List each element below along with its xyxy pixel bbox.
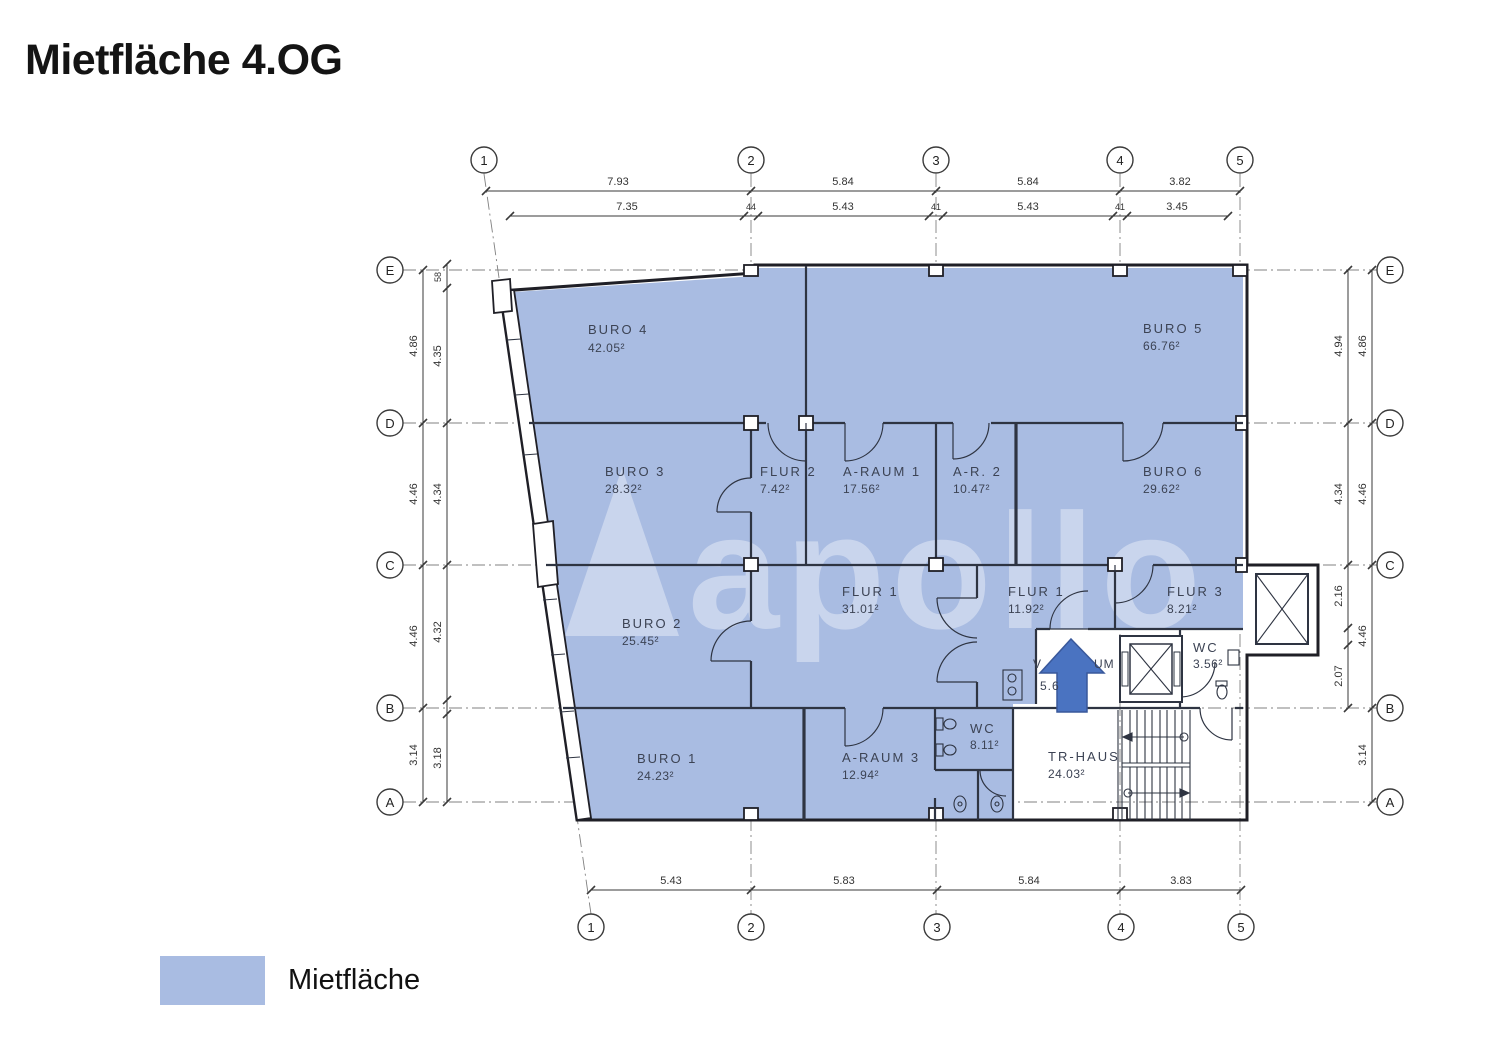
axis-bubble: 5 xyxy=(1237,920,1244,935)
room-name: A-R. 2 xyxy=(953,464,1002,479)
dim-label: 3.18 xyxy=(432,747,444,768)
dim-label: 4.46 xyxy=(1357,625,1369,646)
dim-label: 7.35 xyxy=(616,201,637,213)
axis-bubble: B xyxy=(386,701,395,716)
room-name: WC xyxy=(1193,640,1219,655)
axis-bubble: A xyxy=(386,795,395,810)
room-name: TR-HAUS xyxy=(1048,749,1120,764)
dim-label: 4.46 xyxy=(408,625,420,646)
legend-label: Mietfläche xyxy=(288,964,420,997)
axis-bubble: E xyxy=(1386,263,1395,278)
axis-bubble: 3 xyxy=(933,920,940,935)
room-name-fragment: V xyxy=(1033,657,1042,671)
room-area: 12.94² xyxy=(842,768,879,782)
dim-label: 5.83 xyxy=(833,875,854,887)
dim-bottom: 5.43 5.83 5.84 3.83 xyxy=(587,875,1245,894)
dim-label: 4.32 xyxy=(432,621,444,642)
room-name: BURO 1 xyxy=(637,751,697,766)
axis-bubble: 2 xyxy=(747,920,754,935)
dim-label: 5.43 xyxy=(832,201,853,213)
dim-label: 41 xyxy=(1115,202,1125,212)
axis-bubble: C xyxy=(1385,558,1394,573)
room-area: 31.01² xyxy=(842,602,879,616)
dim-label: 41 xyxy=(931,202,941,212)
dim-label: 4.34 xyxy=(1333,483,1345,504)
room-name-fragment: UM xyxy=(1094,657,1115,671)
dim-label: 4.34 xyxy=(432,483,444,504)
floor-plan-page: Mietfläche 4.OG apollo xyxy=(0,0,1500,1038)
room-area: 7.42² xyxy=(760,482,790,496)
axis-bubble: E xyxy=(386,263,395,278)
dim-label: 4.35 xyxy=(432,345,444,366)
dim-label: 7.93 xyxy=(607,176,628,188)
dim-label: 3.82 xyxy=(1169,176,1190,188)
room-name: FLUR 2 xyxy=(760,464,817,479)
room-area: 11.92² xyxy=(1008,602,1044,616)
room-area: 28.32² xyxy=(605,482,642,496)
axis-bubble: 1 xyxy=(480,153,487,168)
axis-bubble: 2 xyxy=(747,153,754,168)
axis-bubble: C xyxy=(385,558,394,573)
dim-label: 5.43 xyxy=(1017,201,1038,213)
room-name: BURO 5 xyxy=(1143,321,1203,336)
room-area: 8.11² xyxy=(970,738,999,752)
room-name: FLUR 1 xyxy=(1008,584,1065,599)
axis-bubble: 1 xyxy=(587,920,594,935)
staircase xyxy=(1118,710,1190,820)
dim-label: 5.84 xyxy=(1018,875,1039,887)
dim-right: 4.94 4.34 2.16 2.07 4.86 4.46 4.46 3.14 xyxy=(1333,266,1376,806)
axis-bubble: A xyxy=(1386,795,1395,810)
axis-bubble: 4 xyxy=(1117,920,1124,935)
dim-label: 44 xyxy=(746,202,756,212)
elevator-shaft-inner xyxy=(1120,636,1182,702)
dim-label: 5.43 xyxy=(660,875,681,887)
dim-top: 7.93 5.84 5.84 3.82 7.35 44 5.43 41 5.43… xyxy=(482,176,1244,220)
room-area: 17.56² xyxy=(843,482,880,496)
room-name: BURO 2 xyxy=(622,616,682,631)
room-area: 66.76² xyxy=(1143,339,1180,353)
axis-bubble: B xyxy=(1386,701,1395,716)
axis-bubble: 4 xyxy=(1116,153,1123,168)
dim-label: 3.83 xyxy=(1170,875,1191,887)
room-name: FLUR 1 xyxy=(842,584,899,599)
room-name: BURO 3 xyxy=(605,464,665,479)
room-area: 3.56² xyxy=(1193,657,1223,671)
dim-label: 58 xyxy=(433,272,443,282)
room-name: WC xyxy=(970,721,996,736)
room-area: 24.23² xyxy=(637,769,674,783)
dim-label: 4.46 xyxy=(408,483,420,504)
room-area: 8.21² xyxy=(1167,602,1197,616)
room-name: BURO 6 xyxy=(1143,464,1203,479)
dim-label: 3.14 xyxy=(1357,744,1369,765)
axis-bubble: 3 xyxy=(932,153,939,168)
dim-label: 3.14 xyxy=(408,744,420,765)
room-area-fragment: 5.6 xyxy=(1040,679,1060,693)
dim-label: 4.46 xyxy=(1357,483,1369,504)
room-area: 25.45² xyxy=(622,634,659,648)
room-area: 29.62² xyxy=(1143,482,1180,496)
dim-label: 5.84 xyxy=(832,176,853,188)
room-name: BURO 4 xyxy=(588,322,648,337)
elevator-shaft-outer xyxy=(1256,574,1308,644)
dim-label: 5.84 xyxy=(1017,176,1038,188)
legend-swatch xyxy=(160,956,265,1005)
room-area: 24.03² xyxy=(1048,767,1085,781)
room-area: 42.05² xyxy=(588,341,625,355)
dim-label: 4.86 xyxy=(1357,335,1369,356)
legend: Mietfläche xyxy=(160,956,420,1005)
dim-label: 3.45 xyxy=(1166,201,1187,213)
dim-label: 2.16 xyxy=(1333,585,1345,606)
dim-left: 4.86 4.46 4.46 3.14 58 4.35 4.34 4.32 3.… xyxy=(408,260,451,806)
room-area: 10.47² xyxy=(953,482,990,496)
room-name: FLUR 3 xyxy=(1167,584,1224,599)
axis-bubble: D xyxy=(385,416,394,431)
dim-label: 2.07 xyxy=(1333,665,1345,686)
axis-bubble: D xyxy=(1385,416,1394,431)
axis-bubble: 5 xyxy=(1236,153,1243,168)
dim-label: 4.86 xyxy=(408,335,420,356)
dim-label: 4.94 xyxy=(1333,335,1345,356)
room-name: A-RAUM 1 xyxy=(843,464,921,479)
room-name: A-RAUM 3 xyxy=(842,750,920,765)
floor-plan-svg: apollo xyxy=(0,0,1500,1038)
